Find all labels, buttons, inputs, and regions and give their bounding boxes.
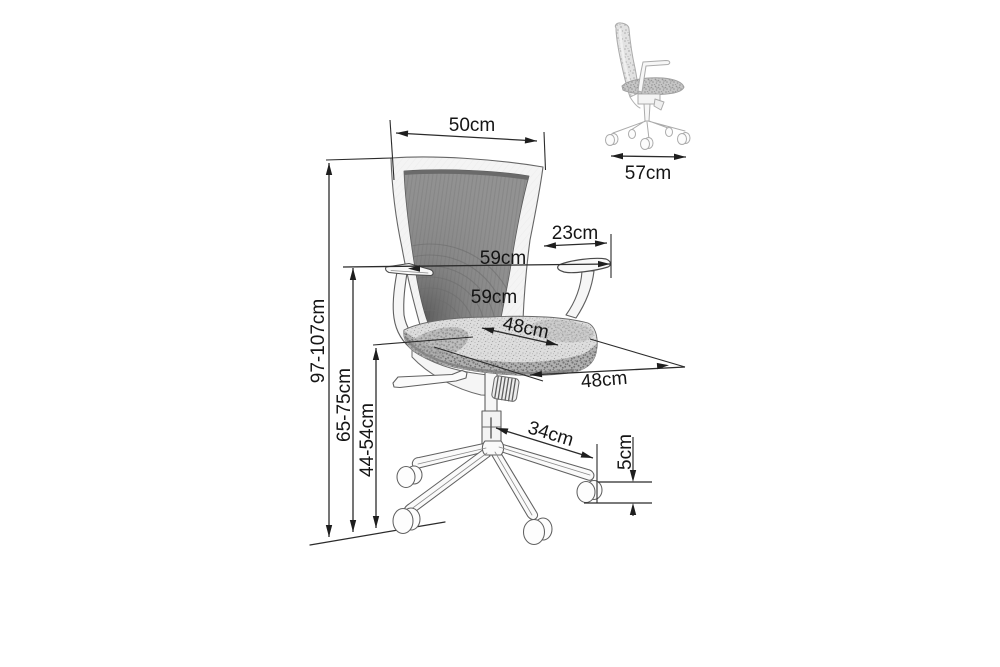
svg-text:5cm: 5cm (615, 434, 636, 470)
svg-text:59cm: 59cm (471, 287, 517, 308)
svg-text:34cm: 34cm (525, 417, 576, 451)
svg-text:59cm: 59cm (480, 248, 526, 269)
svg-text:65-75cm: 65-75cm (334, 368, 355, 442)
svg-text:97-107cm: 97-107cm (308, 299, 329, 384)
svg-text:48cm: 48cm (580, 368, 628, 393)
svg-text:23cm: 23cm (552, 223, 598, 244)
svg-text:44-54cm: 44-54cm (357, 403, 378, 477)
svg-text:50cm: 50cm (449, 115, 495, 136)
svg-text:57cm: 57cm (625, 163, 671, 184)
